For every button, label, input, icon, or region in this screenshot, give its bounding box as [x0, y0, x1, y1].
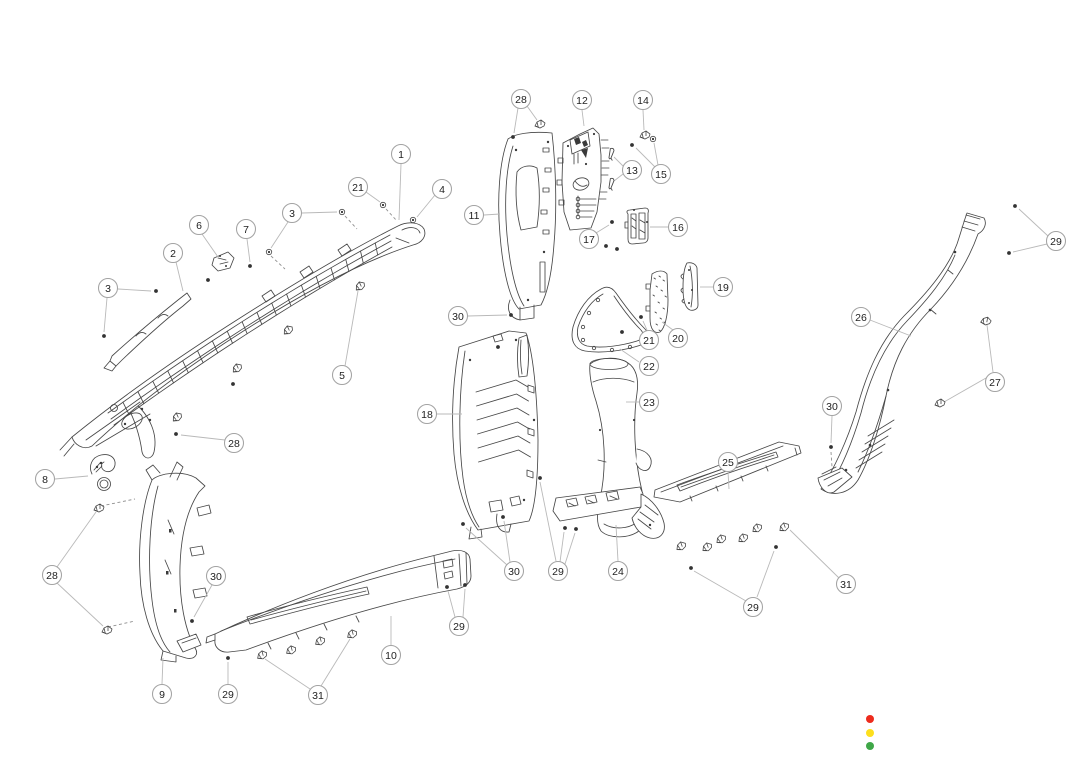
- part-b-pillar-inner-panel[interactable]: [557, 128, 609, 230]
- screw-icon: [615, 247, 619, 251]
- leader-line: [565, 533, 575, 564]
- dashed-leader-line: [108, 621, 135, 627]
- callout-29[interactable]: 29: [219, 685, 238, 704]
- screw-icon: [630, 143, 634, 147]
- callout-27[interactable]: 27: [986, 373, 1005, 392]
- callout-11[interactable]: 11: [465, 206, 484, 225]
- callout-31[interactable]: 31: [837, 575, 856, 594]
- leader-line: [162, 658, 163, 684]
- exploded-parts-diagram: 1214367235288283092931102928121413151117…: [0, 0, 1080, 764]
- callout-29[interactable]: 29: [450, 617, 469, 636]
- callout-number: 28: [46, 570, 58, 582]
- callout-number: 10: [385, 650, 397, 662]
- leader-line: [790, 530, 839, 578]
- callout-number: 26: [855, 312, 867, 324]
- callout-26[interactable]: 26: [852, 308, 871, 327]
- part-coat-hook[interactable]: [90, 455, 115, 491]
- callout-18[interactable]: 18: [418, 405, 437, 424]
- callout-number: 9: [159, 689, 165, 701]
- clip-icon: [346, 629, 358, 639]
- callout-29[interactable]: 29: [744, 598, 763, 617]
- callout-number: 30: [508, 566, 520, 578]
- callout-30[interactable]: 30: [505, 562, 524, 581]
- callout-number: 11: [469, 210, 480, 222]
- callout-number: 29: [747, 602, 759, 614]
- clip-icon: [737, 533, 749, 544]
- part-b-pillar-lower-trim[interactable]: [453, 331, 538, 539]
- screw-icon: [501, 515, 505, 519]
- leader-line: [514, 108, 518, 133]
- callout-number: 8: [42, 474, 48, 486]
- callout-number: 29: [453, 621, 465, 633]
- callout-number: 28: [228, 438, 240, 450]
- screw-icon: [538, 476, 542, 480]
- callout-number: 3: [289, 208, 295, 220]
- screw-icon: [574, 527, 578, 531]
- callout-5[interactable]: 5: [333, 366, 352, 385]
- callout-29[interactable]: 29: [1047, 232, 1066, 251]
- clip-icon: [778, 522, 790, 533]
- callout-number: 30: [210, 571, 222, 583]
- screw-icon: [463, 583, 467, 587]
- callout-number: 7: [243, 224, 249, 236]
- green-dot: [866, 742, 874, 750]
- callout-17[interactable]: 17: [580, 230, 599, 249]
- callout-31[interactable]: 31: [309, 686, 328, 705]
- part-a-pillar-lower-trim[interactable]: [140, 462, 211, 662]
- leader-line: [694, 571, 746, 601]
- leader-line: [560, 532, 564, 562]
- callout-number: 29: [222, 689, 234, 701]
- callout-16[interactable]: 16: [669, 218, 688, 237]
- leader-line: [104, 298, 107, 332]
- dashed-leader-line: [271, 256, 285, 269]
- part-textured-strip-20[interactable]: [646, 271, 668, 332]
- leader-line: [202, 234, 218, 257]
- callout-30[interactable]: 30: [207, 567, 226, 586]
- callout-number: 30: [452, 311, 464, 323]
- leader-line: [247, 239, 250, 262]
- pin-icon: [608, 178, 616, 191]
- callout-number: 20: [672, 333, 684, 345]
- leader-line: [987, 325, 993, 372]
- screw-icon: [231, 382, 235, 386]
- red-dot: [866, 715, 874, 723]
- yellow-dot: [866, 729, 874, 737]
- callout-number: 17: [583, 234, 595, 246]
- callout-2[interactable]: 2: [164, 244, 183, 263]
- clip-icon: [980, 316, 991, 326]
- leader-line: [399, 164, 401, 220]
- screw-icon: [102, 334, 106, 338]
- leader-line: [643, 110, 644, 130]
- screw-icon: [445, 585, 449, 589]
- leader-line: [1013, 244, 1047, 252]
- callout-number: 29: [552, 566, 564, 578]
- callout-number: 25: [722, 457, 734, 469]
- part-seal-22[interactable]: [572, 287, 649, 352]
- callout-number: 29: [1050, 236, 1062, 248]
- callout-number: 1: [398, 149, 404, 161]
- callout-number: 23: [643, 397, 655, 409]
- screw-icon: [206, 278, 210, 282]
- callout-7[interactable]: 7: [237, 220, 256, 239]
- callout-number: 31: [312, 690, 324, 702]
- clip-icon: [314, 636, 326, 646]
- pin-icon: [608, 148, 616, 161]
- clip-icon: [102, 626, 112, 634]
- leader-line: [944, 378, 986, 402]
- callout-number: 21: [643, 335, 655, 347]
- screw-icon: [1007, 251, 1011, 255]
- bolt-icon: [266, 249, 271, 254]
- callout-21[interactable]: 21: [640, 331, 659, 350]
- leader-line: [614, 157, 623, 166]
- callout-14[interactable]: 14: [634, 91, 653, 110]
- bolt-icon: [410, 217, 415, 222]
- leader-line: [55, 476, 88, 479]
- callout-number: 28: [515, 94, 527, 106]
- clip-icon: [171, 411, 183, 422]
- leader-line: [366, 192, 380, 202]
- screw-icon: [563, 526, 567, 530]
- part-a-pillar-upper-trim[interactable]: [60, 223, 425, 458]
- callout-21[interactable]: 21: [349, 178, 368, 197]
- callout-number: 21: [352, 182, 364, 194]
- bolt-icon: [650, 136, 655, 141]
- part-b-pillar-upper-trim[interactable]: [499, 132, 556, 320]
- leader-line: [417, 195, 435, 217]
- callout-20[interactable]: 20: [669, 329, 688, 348]
- screw-icon: [248, 264, 252, 268]
- leader-line: [527, 106, 537, 120]
- screw-icon: [610, 220, 614, 224]
- clip-icon: [701, 542, 713, 553]
- screw-icon: [774, 545, 778, 549]
- callout-6[interactable]: 6: [190, 216, 209, 235]
- screw-icon: [496, 345, 500, 349]
- callout-15[interactable]: 15: [652, 165, 671, 184]
- leader-line: [345, 291, 358, 366]
- callout-12[interactable]: 12: [573, 91, 592, 110]
- screw-icon: [604, 244, 608, 248]
- leader-line: [540, 482, 556, 561]
- leader-line: [466, 528, 507, 565]
- screw-icon: [639, 315, 643, 319]
- screw-icon: [511, 135, 515, 139]
- dashed-leader-line: [345, 216, 357, 229]
- callout-29[interactable]: 29: [549, 562, 568, 581]
- part-bracket-6[interactable]: [212, 252, 234, 271]
- callout-number: 16: [672, 222, 684, 234]
- screw-icon: [226, 656, 230, 660]
- callout-number: 12: [576, 95, 588, 107]
- clip-icon: [715, 534, 727, 545]
- callout-30[interactable]: 30: [823, 397, 842, 416]
- leader-line: [654, 143, 658, 165]
- dashed-leader-line: [831, 452, 832, 467]
- callout-30[interactable]: 30: [449, 307, 468, 326]
- screw-icon: [174, 432, 178, 436]
- clip-icon: [256, 650, 268, 660]
- callout-22[interactable]: 22: [640, 357, 659, 376]
- leader-line: [321, 639, 350, 686]
- callout-4[interactable]: 4: [433, 180, 452, 199]
- leader-line: [181, 435, 225, 440]
- leader-line: [614, 174, 623, 181]
- callout-number: 4: [439, 184, 445, 196]
- callout-24[interactable]: 24: [609, 562, 628, 581]
- dashed-leader-line: [101, 499, 135, 506]
- callout-28[interactable]: 28: [43, 566, 62, 585]
- screw-icon: [509, 313, 513, 317]
- callout-number: 5: [339, 370, 345, 382]
- callout-number: 24: [612, 566, 624, 578]
- clip-icon: [285, 645, 297, 655]
- leader-line: [271, 222, 288, 248]
- callout-number: 19: [717, 282, 729, 294]
- leader-line: [596, 225, 609, 233]
- leader-line: [176, 262, 183, 291]
- leader-line: [468, 315, 507, 316]
- clip-icon: [94, 504, 104, 512]
- callout-number: 3: [105, 283, 111, 295]
- screw-icon: [829, 445, 833, 449]
- callout-3[interactable]: 3: [99, 279, 118, 298]
- callout-number: 2: [170, 248, 176, 260]
- leader-line: [1019, 209, 1048, 236]
- screw-icon: [1013, 204, 1017, 208]
- clip-icon: [282, 324, 294, 335]
- callout-number: 14: [637, 95, 649, 107]
- leader-line: [582, 110, 584, 126]
- callout-1[interactable]: 1: [392, 145, 411, 164]
- callout-3[interactable]: 3: [283, 204, 302, 223]
- clip-icon: [640, 131, 650, 139]
- callout-8[interactable]: 8: [36, 470, 55, 489]
- leader-line: [757, 551, 774, 597]
- callout-number: 31: [840, 579, 852, 591]
- clip-icon: [354, 280, 366, 291]
- callout-13[interactable]: 13: [623, 161, 642, 180]
- callout-19[interactable]: 19: [714, 278, 733, 297]
- part-c-pillar-lower-trim[interactable]: [818, 213, 985, 493]
- callout-number: 18: [421, 409, 433, 421]
- clip-icon: [751, 523, 763, 534]
- bolt-icon: [380, 202, 385, 207]
- part-bracket-16[interactable]: [625, 208, 648, 244]
- callout-25[interactable]: 25: [719, 453, 738, 472]
- callout-10[interactable]: 10: [382, 646, 401, 665]
- callout-number: 6: [196, 220, 202, 232]
- leader-line: [57, 583, 103, 626]
- screw-icon: [689, 566, 693, 570]
- callout-number: 15: [655, 169, 667, 181]
- screw-icon: [461, 522, 465, 526]
- leader-line: [448, 591, 455, 617]
- part-plate-19[interactable]: [681, 263, 698, 311]
- callout-number: 22: [643, 361, 655, 373]
- leader-line: [265, 659, 310, 689]
- clip-icon: [935, 399, 945, 407]
- clip-icon: [535, 120, 545, 128]
- leader-line: [118, 289, 151, 291]
- screw-icon: [620, 330, 624, 334]
- leader-line: [484, 214, 500, 215]
- leader-line: [57, 512, 96, 567]
- screw-icon: [154, 289, 158, 293]
- clip-icon: [675, 541, 687, 552]
- callout-number: 13: [626, 165, 638, 177]
- status-indicator-legend: [866, 715, 874, 750]
- callout-number: 30: [826, 401, 838, 413]
- leader-line: [463, 589, 465, 617]
- leader-line: [831, 416, 832, 443]
- part-front-door-sill-plate[interactable]: [177, 550, 471, 652]
- callout-23[interactable]: 23: [640, 393, 659, 412]
- dashed-leader-line: [386, 209, 397, 221]
- leader-line: [504, 521, 510, 562]
- bolt-icon: [339, 209, 344, 214]
- callout-28[interactable]: 28: [512, 90, 531, 109]
- callout-9[interactable]: 9: [153, 685, 172, 704]
- clip-icon: [231, 362, 243, 373]
- screw-icon: [190, 619, 194, 623]
- callout-number: 27: [989, 377, 1001, 389]
- leader-line: [302, 212, 337, 213]
- callout-28[interactable]: 28: [225, 434, 244, 453]
